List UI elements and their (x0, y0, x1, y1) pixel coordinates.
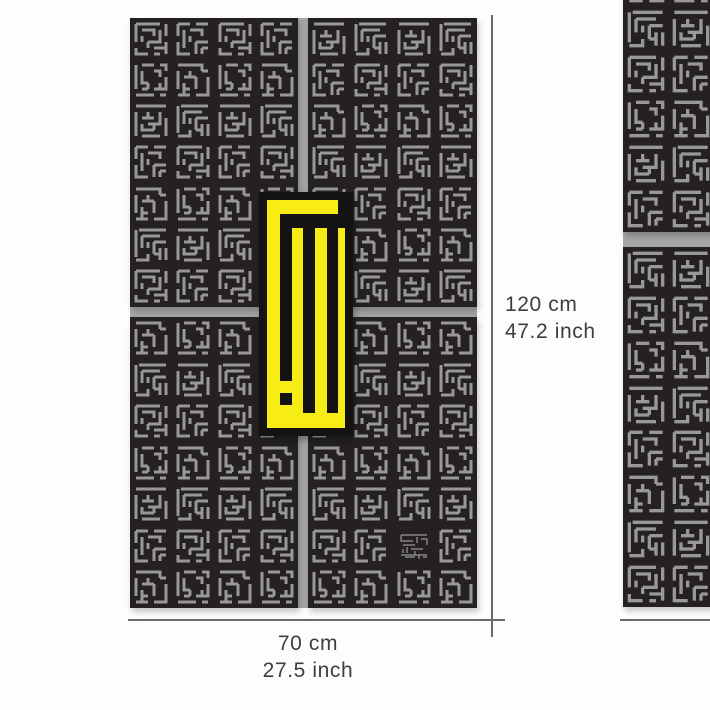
kufic-panel-side-top (623, 0, 710, 232)
kufic-motif-tile (438, 445, 474, 481)
kufic-motif-tile (217, 362, 253, 398)
kufic-motif-tile (311, 62, 347, 98)
kufic-motif-tile (626, 0, 666, 4)
kufic-motif-tile (133, 528, 169, 564)
kufic-motif-tile (259, 486, 295, 522)
kufic-motif-tile (133, 21, 169, 57)
kufic-motif-tile (626, 429, 666, 469)
kufic-motif-tile (133, 186, 169, 222)
kufic-motif-tile (175, 227, 211, 263)
kufic-motif-tile (175, 362, 211, 398)
kufic-motif-tile (259, 62, 295, 98)
kufic-motif-tile (353, 528, 389, 564)
kufic-motif-tile (626, 564, 666, 604)
kufic-motif-tile (311, 569, 347, 605)
kufic-motif-tile (353, 486, 389, 522)
kufic-motif-tile (396, 403, 432, 439)
kufic-motif-tile (626, 189, 666, 229)
kufic-motif-tile (626, 340, 666, 380)
kufic-motif-tile (217, 186, 253, 222)
kufic-motif-tile (671, 99, 710, 139)
height-label: 120 cm 47.2 inch (505, 292, 596, 345)
kufic-motif-tile (311, 528, 347, 564)
kufic-motif-tile (671, 564, 710, 604)
kufic-motif-tile (133, 103, 169, 139)
allah-square-kufic (259, 192, 353, 436)
kufic-motif-tile (396, 528, 432, 564)
kufic-motif-tile (438, 21, 474, 57)
height-cm-text: 120 cm (505, 292, 596, 319)
kufic-motif-tile (671, 9, 710, 49)
kufic-motif-tile (217, 486, 253, 522)
width-dimension-line (128, 619, 505, 621)
width-inch-text: 27.5 inch (233, 658, 383, 685)
kufic-motif-tile (353, 445, 389, 481)
kufic-motif-tile (438, 144, 474, 180)
kufic-motif-tile (396, 486, 432, 522)
kufic-motif-tile (396, 362, 432, 398)
kufic-motif-tile (671, 295, 710, 335)
kufic-motif-tile (353, 320, 389, 356)
kufic-motif-tile (175, 103, 211, 139)
kufic-motif-tile (175, 403, 211, 439)
kufic-motif-tile (217, 569, 253, 605)
kufic-motif-tile (626, 9, 666, 49)
kufic-motif-tile (438, 403, 474, 439)
kufic-motif-tile (438, 62, 474, 98)
kufic-motif-tile (438, 320, 474, 356)
kufic-motif-tile (396, 62, 432, 98)
kufic-motif-tile (396, 445, 432, 481)
kufic-motif-tile (671, 385, 710, 425)
dimension-diagram: 120 cm 47.2 inch 70 cm 27.5 inch (0, 0, 710, 710)
kufic-motif-tile (626, 250, 666, 290)
side-artwork-cropped (623, 0, 710, 607)
kufic-motif-tile (175, 445, 211, 481)
kufic-motif-tile (626, 144, 666, 184)
kufic-motif-tile (133, 227, 169, 263)
kufic-motif-tile (259, 144, 295, 180)
kufic-motif-tile (133, 403, 169, 439)
kufic-motif-tile (626, 54, 666, 94)
kufic-motif-tile (217, 144, 253, 180)
side-width-dimension-line (620, 619, 710, 621)
kufic-motif-tile (175, 186, 211, 222)
kufic-motif-tile (217, 320, 253, 356)
kufic-motif-tile (353, 62, 389, 98)
kufic-motif-tile (217, 445, 253, 481)
kufic-motif-tile (438, 227, 474, 263)
kufic-motif-tile (311, 21, 347, 57)
kufic-motif-tile (353, 227, 389, 263)
kufic-motif-tile (671, 144, 710, 184)
kufic-motif-tile (217, 227, 253, 263)
kufic-motif-tile (396, 320, 432, 356)
kufic-motif-tile (217, 62, 253, 98)
kufic-motif-tile (671, 474, 710, 514)
kufic-motif-tile (438, 268, 474, 304)
kufic-motif-tile (175, 320, 211, 356)
kufic-motif-tile (133, 320, 169, 356)
kufic-motif-tile (259, 569, 295, 605)
kufic-motif-tile (396, 144, 432, 180)
width-cm-text: 70 cm (233, 631, 383, 658)
kufic-motif-tile (396, 227, 432, 263)
kufic-motif-tile (175, 268, 211, 304)
kufic-motif-tile (671, 54, 710, 94)
kufic-motif-tile (626, 99, 666, 139)
kufic-motif-tile (671, 340, 710, 380)
kufic-motif-tile (671, 429, 710, 469)
kufic-motif-tile (259, 21, 295, 57)
kufic-motif-tile (438, 186, 474, 222)
kufic-motif-tile (311, 144, 347, 180)
kufic-motif-tile (259, 445, 295, 481)
kufic-motif-tile (175, 486, 211, 522)
kufic-motif-tile (133, 144, 169, 180)
height-inch-text: 47.2 inch (505, 319, 596, 346)
kufic-motif-tile (626, 519, 666, 559)
kufic-motif-tile (438, 569, 474, 605)
kufic-motif-tile (175, 569, 211, 605)
kufic-motif-tile (671, 0, 710, 4)
kufic-motif-tile (217, 103, 253, 139)
kufic-motif-tile (217, 21, 253, 57)
height-dimension-line (491, 15, 493, 637)
kufic-motif-tile (396, 186, 432, 222)
kufic-motif-tile (217, 403, 253, 439)
allah-medallion (259, 192, 353, 436)
kufic-motif-tile (133, 268, 169, 304)
kufic-motif-tile (311, 445, 347, 481)
kufic-motif-tile (311, 103, 347, 139)
kufic-motif-tile (438, 528, 474, 564)
kufic-motif-tile (353, 362, 389, 398)
kufic-motif-tile (133, 62, 169, 98)
kufic-motif-tile (626, 385, 666, 425)
kufic-motif-tile (438, 486, 474, 522)
kufic-motif-tile (217, 268, 253, 304)
kufic-motif-tile (259, 103, 295, 139)
kufic-motif-tile (311, 486, 347, 522)
kufic-motif-tile (175, 144, 211, 180)
kufic-panel-side-bottom (623, 247, 710, 607)
kufic-motif-tile (133, 486, 169, 522)
kufic-motif-tile (396, 569, 432, 605)
kufic-motif-tile (133, 445, 169, 481)
kufic-motif-tile (353, 569, 389, 605)
kufic-motif-tile (353, 268, 389, 304)
kufic-motif-tile (217, 528, 253, 564)
kufic-motif-tile (175, 62, 211, 98)
kufic-motif-tile (396, 103, 432, 139)
kufic-motif-tile (396, 21, 432, 57)
kufic-motif-tile (353, 144, 389, 180)
kufic-motif-tile (353, 403, 389, 439)
kufic-motif-tile (175, 21, 211, 57)
kufic-motif-tile (626, 474, 666, 514)
kufic-motif-tile (438, 103, 474, 139)
kufic-motif-tile (626, 295, 666, 335)
kufic-motif-tile (671, 189, 710, 229)
kufic-motif-tile (353, 103, 389, 139)
kufic-motif-tile (133, 362, 169, 398)
kufic-motif-tile (396, 268, 432, 304)
kufic-motif-tile (175, 528, 211, 564)
kufic-motif-tile (259, 528, 295, 564)
kufic-motif-tile (133, 569, 169, 605)
width-label: 70 cm 27.5 inch (233, 631, 383, 684)
kufic-motif-tile (353, 186, 389, 222)
kufic-motif-tile (438, 362, 474, 398)
kufic-motif-tile (671, 250, 710, 290)
kufic-motif-tile (353, 21, 389, 57)
kufic-motif-tile (671, 519, 710, 559)
